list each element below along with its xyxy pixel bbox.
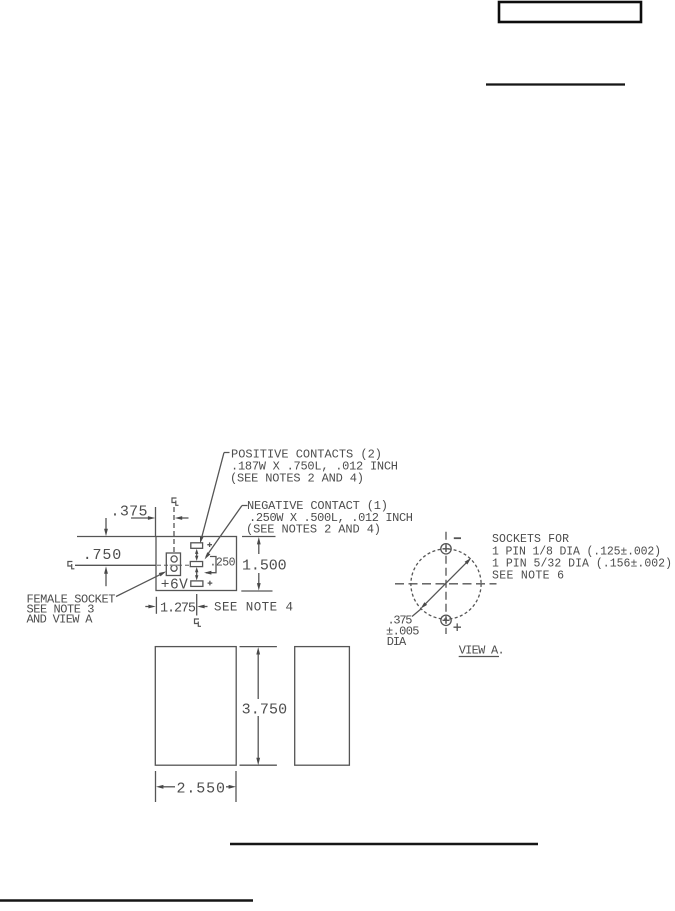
svg-text:SEE NOTE 4: SEE NOTE 4: [214, 601, 293, 615]
svg-text:DIA: DIA: [387, 635, 407, 649]
svg-text:SEE NOTE 6: SEE NOTE 6: [492, 570, 564, 583]
svg-text:SOCKETS FOR: SOCKETS FOR: [492, 533, 569, 546]
svg-text:(SEE NOTES 2 AND 4): (SEE NOTES 2 AND 4): [246, 523, 381, 537]
svg-text:2.550: 2.550: [177, 781, 226, 798]
svg-text:.250: .250: [210, 557, 236, 570]
svg-text:3.750: 3.750: [242, 702, 288, 719]
svg-text:AND VIEW A: AND VIEW A: [27, 613, 94, 627]
svg-text:+6V: +6V: [161, 578, 188, 594]
svg-text:.750: .750: [83, 547, 122, 564]
svg-text:(SEE NOTES 2 AND 4): (SEE NOTES 2 AND 4): [230, 472, 364, 486]
svg-text:1.500: 1.500: [242, 558, 287, 575]
svg-text:1.275: 1.275: [160, 602, 196, 617]
svg-text:VIEW A.: VIEW A.: [459, 644, 505, 658]
